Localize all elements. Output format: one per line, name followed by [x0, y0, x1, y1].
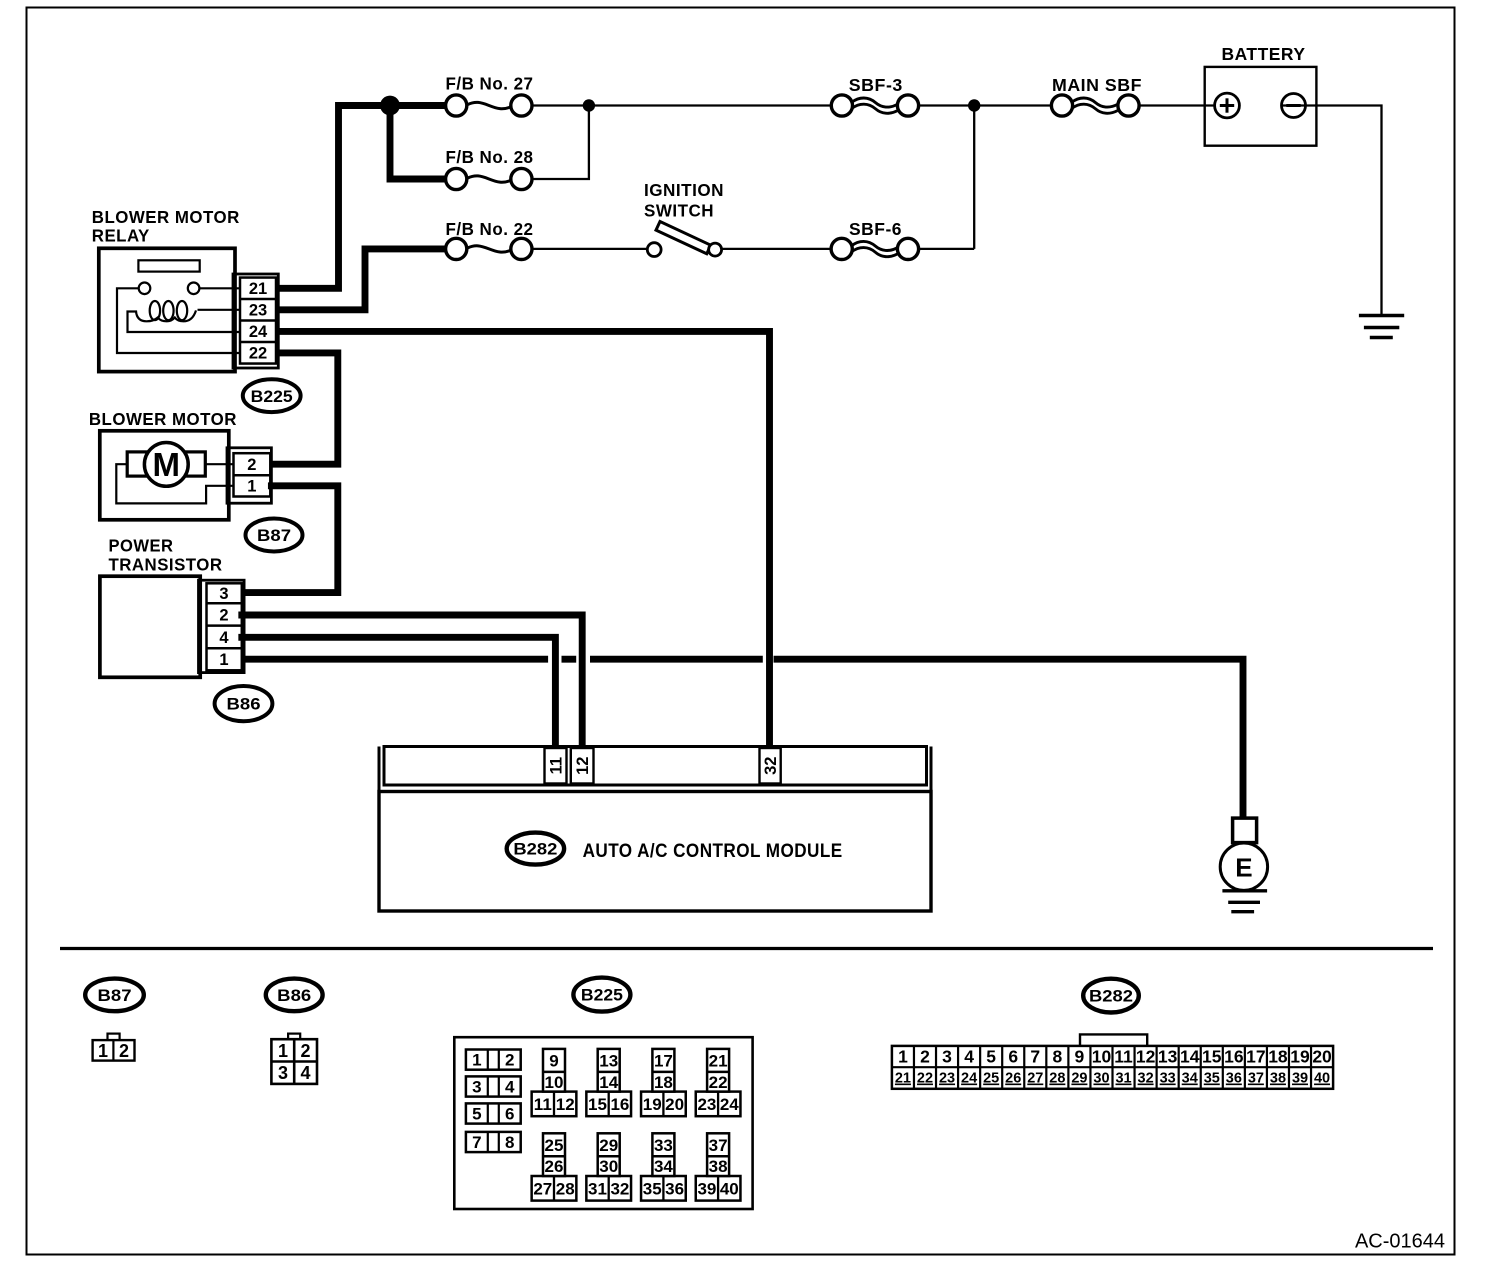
- svg-text:12: 12: [556, 1095, 575, 1114]
- svg-text:22: 22: [249, 345, 267, 363]
- svg-text:16: 16: [1224, 1046, 1244, 1066]
- svg-text:11: 11: [547, 757, 565, 774]
- svg-text:IGNITION: IGNITION: [644, 180, 724, 200]
- svg-text:MAIN SBF: MAIN SBF: [1052, 75, 1142, 95]
- svg-text:2: 2: [920, 1046, 930, 1066]
- svg-text:31: 31: [588, 1179, 607, 1198]
- svg-text:M: M: [153, 446, 181, 483]
- svg-text:1: 1: [247, 478, 256, 496]
- svg-text:18: 18: [1268, 1046, 1288, 1066]
- svg-text:SWITCH: SWITCH: [644, 201, 714, 221]
- svg-text:6: 6: [1008, 1046, 1018, 1066]
- svg-text:3: 3: [942, 1046, 952, 1066]
- svg-text:22: 22: [709, 1073, 728, 1092]
- svg-text:5: 5: [986, 1046, 996, 1066]
- svg-text:33: 33: [654, 1136, 673, 1155]
- svg-text:11: 11: [534, 1095, 552, 1114]
- svg-text:13: 13: [1158, 1046, 1178, 1066]
- svg-text:AUTO A/C CONTROL MODULE: AUTO A/C CONTROL MODULE: [583, 840, 843, 862]
- svg-text:17: 17: [654, 1051, 673, 1070]
- svg-text:30: 30: [599, 1157, 618, 1176]
- svg-text:14: 14: [1180, 1046, 1200, 1066]
- svg-text:27: 27: [533, 1179, 552, 1198]
- svg-text:23: 23: [249, 302, 267, 320]
- svg-text:10: 10: [1092, 1046, 1112, 1066]
- svg-text:34: 34: [654, 1157, 673, 1176]
- svg-text:B225: B225: [581, 986, 623, 1005]
- svg-text:32: 32: [762, 757, 780, 775]
- svg-text:4: 4: [964, 1046, 974, 1066]
- svg-text:1: 1: [98, 1041, 108, 1061]
- svg-text:24: 24: [249, 323, 268, 341]
- svg-text:B87: B87: [98, 986, 132, 1005]
- svg-text:8: 8: [505, 1133, 514, 1152]
- svg-text:13: 13: [599, 1051, 618, 1070]
- svg-text:21: 21: [709, 1051, 728, 1070]
- svg-text:17: 17: [1246, 1046, 1265, 1066]
- svg-text:TRANSISTOR: TRANSISTOR: [109, 554, 223, 574]
- svg-text:3: 3: [219, 585, 228, 603]
- svg-text:19: 19: [643, 1095, 662, 1114]
- svg-text:23: 23: [697, 1095, 716, 1114]
- svg-text:1: 1: [898, 1046, 908, 1066]
- svg-text:AC-01644: AC-01644: [1355, 1231, 1445, 1253]
- svg-text:2: 2: [219, 606, 228, 624]
- svg-text:2: 2: [247, 456, 256, 474]
- svg-text:26: 26: [545, 1157, 564, 1176]
- svg-text:14: 14: [599, 1073, 618, 1092]
- svg-text:39: 39: [697, 1179, 716, 1198]
- svg-text:4: 4: [505, 1078, 515, 1097]
- svg-text:36: 36: [665, 1179, 684, 1198]
- svg-text:F/B No. 28: F/B No. 28: [446, 147, 534, 167]
- svg-text:32: 32: [610, 1179, 629, 1198]
- svg-text:B86: B86: [277, 986, 311, 1005]
- svg-text:3: 3: [472, 1078, 481, 1097]
- svg-text:B86: B86: [227, 695, 261, 714]
- svg-text:20: 20: [1312, 1046, 1332, 1066]
- svg-text:28: 28: [556, 1179, 575, 1198]
- svg-text:9: 9: [1075, 1046, 1085, 1066]
- svg-text:6: 6: [505, 1105, 514, 1124]
- svg-text:POWER: POWER: [109, 536, 174, 556]
- svg-text:5: 5: [472, 1105, 481, 1124]
- svg-text:BLOWER MOTOR: BLOWER MOTOR: [89, 409, 237, 429]
- svg-text:7: 7: [1030, 1046, 1040, 1066]
- svg-text:24: 24: [720, 1095, 739, 1114]
- svg-text:15: 15: [588, 1095, 607, 1114]
- svg-text:4: 4: [300, 1063, 310, 1083]
- svg-text:29: 29: [599, 1136, 618, 1155]
- svg-text:B87: B87: [257, 526, 291, 545]
- svg-text:18: 18: [654, 1073, 673, 1092]
- svg-text:3: 3: [278, 1063, 288, 1083]
- svg-text:40: 40: [720, 1179, 739, 1198]
- svg-text:15: 15: [1202, 1046, 1222, 1066]
- svg-text:4: 4: [219, 629, 229, 647]
- svg-text:11: 11: [1114, 1046, 1133, 1066]
- svg-text:37: 37: [709, 1136, 728, 1155]
- svg-text:20: 20: [665, 1095, 684, 1114]
- svg-text:B225: B225: [251, 387, 293, 406]
- svg-text:7: 7: [472, 1133, 481, 1152]
- svg-text:SBF-3: SBF-3: [849, 75, 903, 95]
- svg-text:25: 25: [545, 1136, 564, 1155]
- svg-text:12: 12: [574, 757, 592, 775]
- svg-text:2: 2: [300, 1041, 310, 1061]
- svg-text:21: 21: [249, 280, 267, 298]
- svg-text:1: 1: [278, 1041, 288, 1061]
- svg-text:8: 8: [1052, 1046, 1062, 1066]
- svg-text:E: E: [1235, 853, 1252, 883]
- svg-text:10: 10: [545, 1073, 564, 1092]
- svg-text:1: 1: [472, 1051, 481, 1070]
- svg-text:19: 19: [1290, 1046, 1310, 1066]
- svg-text:RELAY: RELAY: [92, 225, 150, 245]
- svg-text:B282: B282: [1089, 987, 1133, 1006]
- svg-text:2: 2: [505, 1051, 514, 1070]
- svg-text:2: 2: [119, 1041, 129, 1061]
- svg-text:38: 38: [709, 1157, 728, 1176]
- svg-text:1: 1: [219, 651, 228, 669]
- svg-text:F/B No. 22: F/B No. 22: [446, 219, 534, 239]
- svg-text:BATTERY: BATTERY: [1222, 44, 1306, 64]
- svg-text:B282: B282: [513, 840, 557, 859]
- svg-text:12: 12: [1136, 1046, 1156, 1066]
- svg-text:35: 35: [643, 1179, 662, 1198]
- svg-text:F/B No. 27: F/B No. 27: [446, 73, 534, 93]
- svg-text:SBF-6: SBF-6: [849, 219, 902, 239]
- svg-text:BLOWER MOTOR: BLOWER MOTOR: [92, 207, 240, 227]
- svg-text:16: 16: [610, 1095, 629, 1114]
- svg-text:9: 9: [549, 1051, 558, 1070]
